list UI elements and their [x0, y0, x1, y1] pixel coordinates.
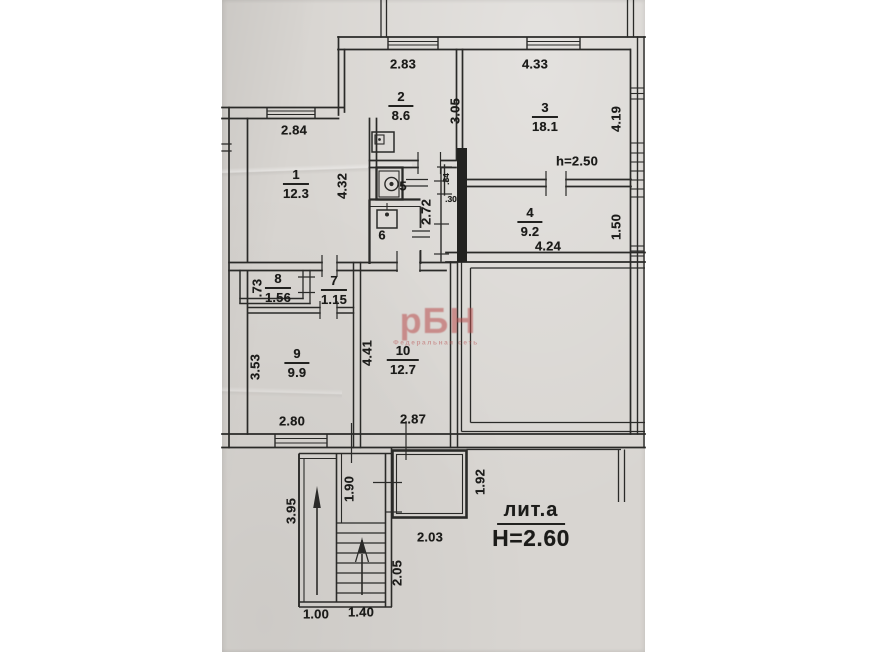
black-wall-band: [457, 148, 467, 262]
dimension-label: 2.05: [390, 560, 405, 586]
stair-flight-arrow-icon: [356, 537, 369, 595]
room-number: 8: [265, 272, 290, 289]
liter-label: лит.а: [497, 500, 566, 525]
dimension-label: 1.50: [609, 214, 624, 240]
room-number: 4: [517, 206, 542, 223]
room-label-2: 28.6: [388, 90, 413, 122]
dimension-label: 2.83: [390, 57, 416, 72]
dimension-label: 1.92: [473, 469, 488, 495]
walls: [222, 0, 645, 448]
room-label-9: 99.9: [284, 347, 309, 379]
vent-dot-icon: [378, 138, 381, 141]
dimension-label: 2.72: [419, 199, 434, 225]
liter-annotation: лит.а Н=2.60: [492, 500, 570, 550]
room-number: 2: [388, 90, 413, 107]
room-number: 1: [283, 168, 308, 185]
room-number: 9: [284, 347, 309, 364]
room-number: 3: [532, 101, 557, 118]
room-label-1: 112.3: [283, 168, 309, 200]
dimension-label: 2.03: [417, 530, 443, 545]
dimension-label: 1.90: [342, 476, 357, 502]
dimension-label: .73: [250, 279, 265, 298]
dimension-label: 2.80: [279, 414, 305, 429]
room-number: 10: [387, 344, 419, 361]
room-label-6: 6: [378, 229, 385, 242]
fixtures: [370, 132, 421, 264]
dimension-label: 4.41: [360, 340, 375, 366]
dimension-label: 3.95: [284, 498, 299, 524]
agency-watermark: рБН: [400, 300, 477, 342]
dimension-label: 4.19: [609, 106, 624, 132]
dimension-label: h=2.50: [556, 154, 598, 169]
liter-height-label: Н=2.60: [492, 525, 570, 550]
room-label-5: 5: [399, 180, 406, 193]
room-area: 1.56: [265, 289, 291, 304]
room-area: 12.3: [283, 185, 309, 200]
room-area: 12.7: [390, 361, 416, 376]
dimension-label: 2.84: [281, 123, 307, 138]
room-number: 6: [378, 229, 385, 242]
room-area: 18.1: [532, 118, 558, 133]
room-label-3: 318.1: [532, 101, 558, 133]
dimension-label: 1.40: [348, 605, 374, 620]
dimension-label: 3.53: [248, 354, 263, 380]
room-area: 9.9: [288, 364, 307, 379]
dimension-label: 2.87: [400, 412, 426, 427]
room-label-4: 49.2: [517, 206, 542, 238]
room-label-8: 81.56: [265, 272, 291, 304]
room-number: 7: [321, 274, 346, 291]
dimension-label: 1.00: [303, 607, 329, 622]
room-label-7: 71.15: [321, 274, 347, 306]
dimension-label: .84: [441, 173, 451, 185]
dimension-label: 4.24: [535, 239, 561, 254]
room-label-10: 1012.7: [387, 344, 419, 376]
room-area: 1.15: [321, 291, 347, 306]
room-number: 5: [399, 180, 406, 193]
dimension-label: 4.33: [522, 57, 548, 72]
room-area: 8.6: [392, 107, 411, 122]
dimension-label: .30: [445, 194, 457, 204]
stair-up-arrow-icon: [313, 486, 321, 595]
stairwell: [299, 448, 392, 608]
adjacent-unit-outline: [462, 262, 646, 432]
dimension-label: 3.05: [448, 98, 463, 124]
floorplan-scan-page: рБН Федеральная сеть лит.а Н=2.60 112.32…: [0, 0, 870, 652]
dimension-label: 4.32: [335, 173, 350, 199]
room-area: 9.2: [521, 223, 540, 238]
